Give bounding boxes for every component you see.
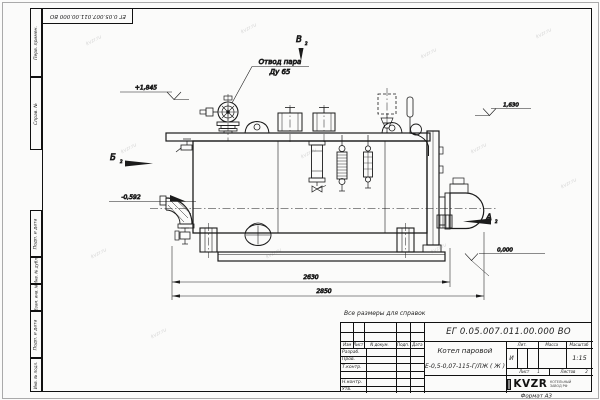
support-leg-front (200, 223, 217, 258)
elevation-feed-inlet: -0,592 (109, 194, 196, 202)
sheet-label: Лист (519, 369, 529, 374)
rev-col-izm: Изм (341, 341, 353, 348)
view-marker-a: А 2 (463, 213, 498, 225)
elevation-valve-top: +1,845 (120, 85, 189, 100)
view-letter-b: Б (110, 153, 116, 163)
elevation-ground: 0,000 (465, 248, 545, 277)
scale-value: 1:15 (566, 348, 593, 368)
role-utv: Утв. (342, 386, 366, 394)
lit-header-label: Лит. (517, 342, 526, 347)
dimension-2850: 2850 (172, 232, 484, 300)
mass-header-label: Масса (546, 342, 559, 347)
rev-col-label: Лист (353, 342, 363, 347)
role-prov: Пров. (342, 356, 366, 364)
product-name-line2: Е-0,5-0,07-115-Г/ЛЖ ( Ж ) (425, 363, 505, 370)
sheets-total-cell: Листов 2 (549, 368, 593, 375)
level-column-2 (364, 135, 373, 188)
rev-col-label: Изм (343, 342, 351, 347)
level-column-1 (337, 135, 347, 191)
handle-rod (407, 97, 413, 133)
rev-col-list: Лист (353, 341, 364, 348)
siphon-loop-pipe (409, 124, 429, 156)
reference-note: Все размеры для справок (344, 308, 507, 318)
title-block: ЕГ 0.05.007.011.00.000 ВО Изм Лист N док… (340, 322, 592, 392)
support-leg-rear (397, 223, 414, 258)
lit-value: И (506, 348, 517, 368)
manhole (245, 223, 271, 246)
role-razrab: Разраб. (342, 348, 366, 356)
rev-col-doc: N докум. (364, 341, 396, 348)
format-note-text: Формат А3 (520, 392, 551, 399)
format-note: Формат А3 (480, 391, 592, 400)
rev-col-sign: Подп. (396, 341, 410, 348)
boiler-platform (166, 133, 430, 141)
water-gauge-glass (309, 141, 326, 192)
role-nkontr: Н.контр. (342, 378, 366, 386)
product-name-cell: Котел паровой Е-0,5-0,07-115-Г/ЛЖ ( Ж ) (424, 341, 506, 375)
dim-text-2850: 2850 (316, 288, 331, 295)
elevation-text: 1,630 (503, 103, 519, 109)
rev-col-label: N докум. (371, 342, 390, 347)
mass-header: Масса (538, 341, 566, 348)
view-sheet-ref: 2 (120, 159, 123, 164)
role-tkontr: Т.контр. (342, 363, 366, 371)
view-sheet-ref: 2 (495, 219, 498, 224)
skid-rail (218, 252, 445, 261)
role-label: Т.контр. (342, 364, 362, 369)
top-hatch-2 (313, 105, 335, 144)
elevation-text: +1,845 (135, 85, 157, 92)
role-label: Утв. (342, 387, 351, 392)
dashed-reserved-fitting (378, 88, 396, 133)
elevation-rear-top: 1,630 (475, 103, 531, 116)
sheets-label: Листов (560, 369, 575, 374)
view-marker-b: Б 2 (110, 153, 153, 167)
product-name-line1: Котел паровой (438, 347, 493, 355)
logo-subtext-2: ЗАВОД РФ (550, 385, 571, 387)
logo-subtext-1: КОТЕЛЬНЫЙ (550, 381, 571, 383)
logo-text: KVZR (513, 378, 547, 390)
callout-text-line1: Отвод пара (259, 58, 302, 66)
sheet-number: 1 (537, 369, 540, 374)
steam-outlet-callout: Отвод пара Ду 65 (232, 58, 309, 103)
elevation-text: 0,000 (497, 248, 513, 254)
bottom-blowdown-valve (175, 228, 190, 244)
rev-col-date: Дата (410, 341, 424, 348)
logo-mark-icon (506, 379, 511, 390)
callout-text-line2: Ду 65 (269, 68, 291, 76)
role-label: Н.контр. (342, 379, 362, 384)
rear-plate (423, 131, 443, 252)
reference-note-text: Все размеры для справок (344, 310, 425, 317)
boiler-shell (193, 141, 427, 233)
lifting-lug-front (245, 122, 269, 134)
lit-header: Лит. (506, 341, 538, 348)
view-letter-v: В (296, 35, 302, 45)
rev-col-label: Подп. (397, 342, 409, 347)
drawing-sheet: { "sheet": { "format_note": "Формат А3",… (0, 0, 600, 400)
role-label: Пров. (342, 357, 355, 362)
sheet-cell: Лист 1 (506, 368, 549, 375)
top-hatch-1 (278, 105, 302, 144)
scale-header-label: Масштаб (570, 342, 589, 347)
view-sheet-ref: 2 (305, 41, 308, 46)
dim-text-2630: 2630 (303, 274, 318, 281)
sheets-number: 2 (585, 369, 588, 374)
role-label: Разраб. (342, 349, 360, 354)
elevation-text: -0,592 (121, 194, 141, 201)
scale-header: Масштаб (566, 341, 593, 348)
titleblock-doc-number: ЕГ 0.05.007.011.00.000 ВО (424, 323, 593, 341)
dimension-2630: 2630 (172, 246, 450, 300)
rev-col-label: Дата (412, 342, 422, 347)
